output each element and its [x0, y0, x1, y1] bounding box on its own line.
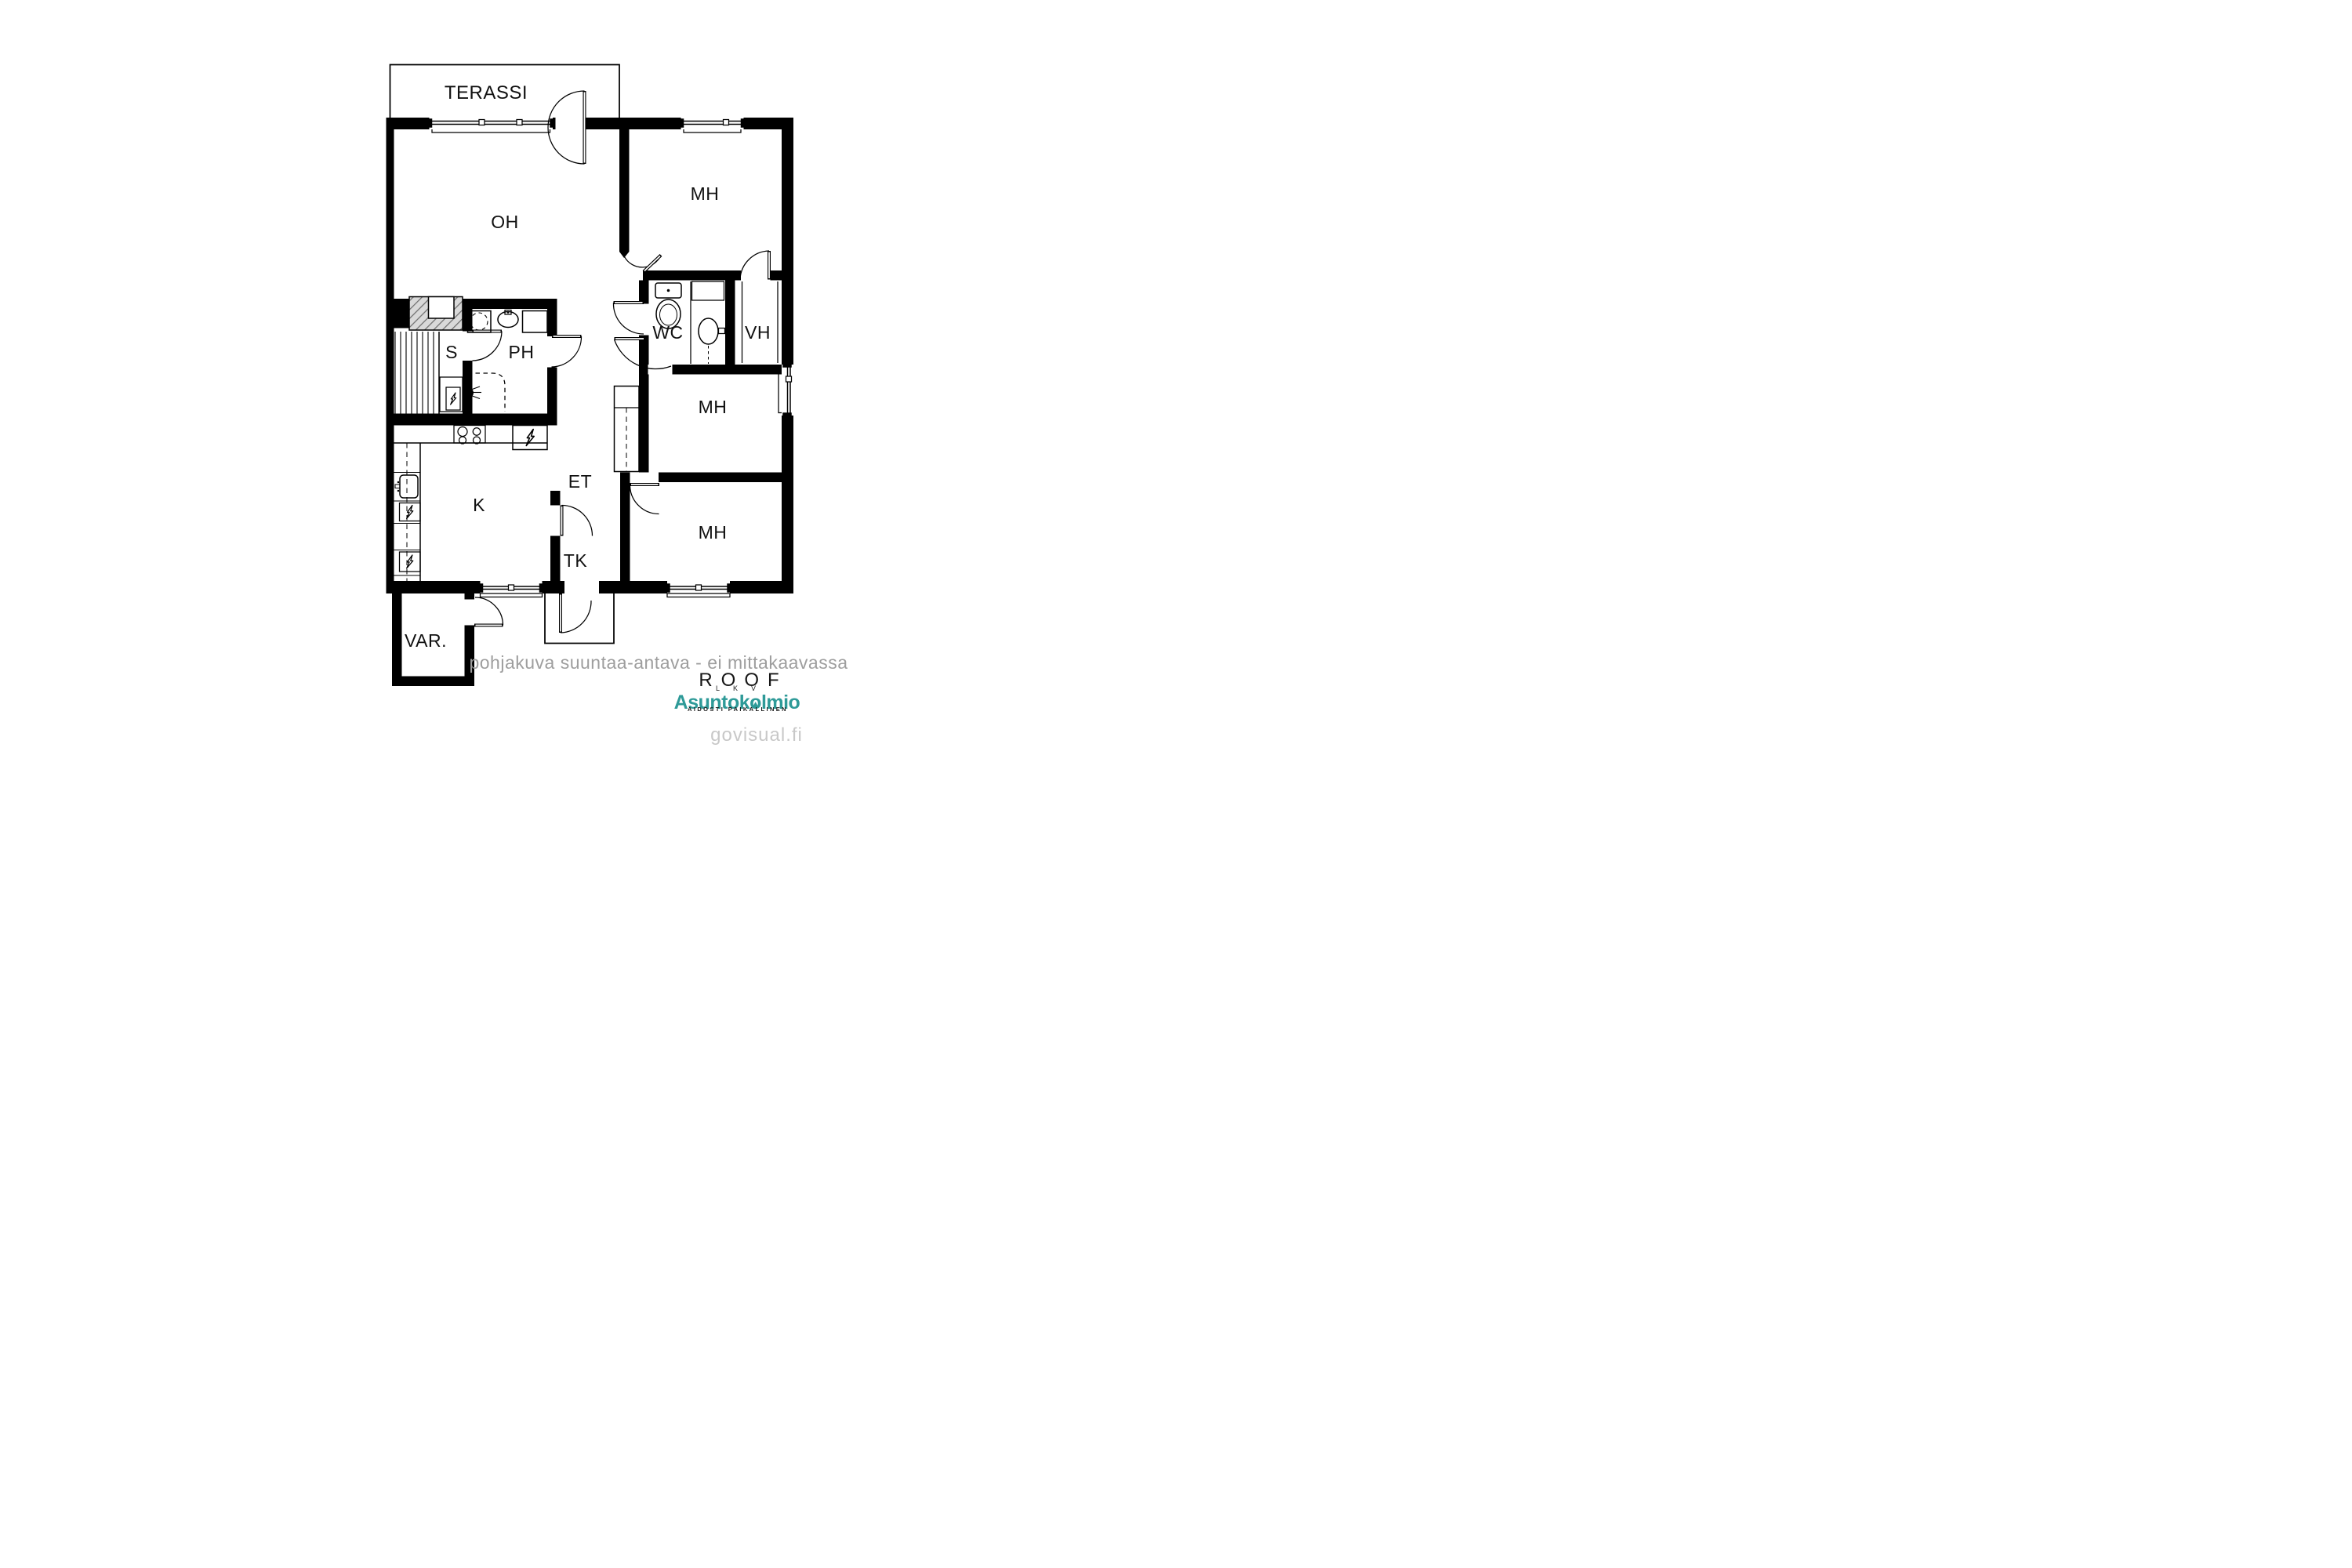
- label-et: ET: [568, 471, 592, 492]
- label-oh: OH: [491, 212, 519, 232]
- label-s: S: [445, 342, 458, 362]
- label-vh: VH: [745, 322, 771, 343]
- window-kitchen: [481, 581, 543, 597]
- chimney-hatch: [409, 297, 463, 331]
- govisual-watermark: govisual.fi: [710, 724, 803, 746]
- label-var: VAR.: [405, 630, 447, 651]
- label-ph: PH: [509, 342, 535, 362]
- window-bedroom-bottom: [667, 581, 730, 597]
- label-tk: TK: [564, 550, 588, 571]
- label-k: K: [473, 495, 485, 515]
- label-terassi: TERASSI: [445, 82, 528, 103]
- label-mh-bottom: MH: [699, 522, 728, 543]
- label-mh-middle: MH: [699, 397, 728, 417]
- label-wc: WC: [652, 322, 683, 343]
- asuntokolmio-tagline: AIDOSTI PAIKALLINEN: [688, 706, 788, 713]
- label-mh-top: MH: [691, 183, 720, 204]
- disclaimer-text: pohjakuva suuntaa-antava - ei mittakaava…: [469, 652, 848, 673]
